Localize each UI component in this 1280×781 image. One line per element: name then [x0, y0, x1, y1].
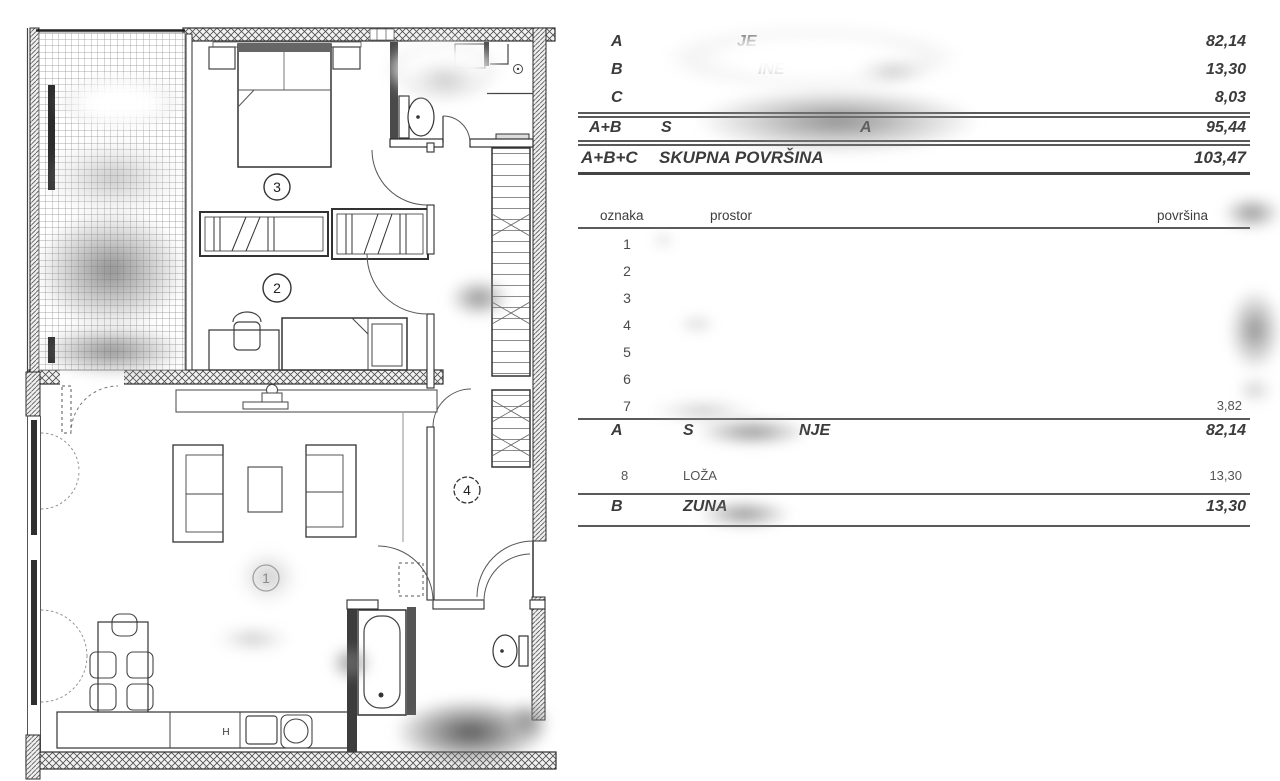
wardrobe-left	[200, 212, 328, 256]
door-arc-living	[433, 389, 471, 427]
header-oznaka: oznaka	[600, 208, 644, 223]
row-label-fragment: S	[661, 119, 672, 137]
room-row: 3	[575, 290, 1252, 310]
tv	[262, 393, 282, 402]
svg-text:4: 4	[463, 482, 471, 498]
row-code: A+B+C	[581, 148, 638, 168]
door-arc-bedroom3	[372, 150, 427, 205]
row-value: 8,03	[1215, 89, 1246, 107]
wc-bowl	[493, 635, 517, 667]
sofa-right	[306, 445, 356, 537]
room-row-8: 8 LOŽA 13,30	[575, 468, 1252, 486]
hall-wardrobe-low	[492, 390, 530, 467]
room-row: 5	[575, 344, 1252, 364]
wall-right-lower	[532, 597, 545, 720]
row-code: B	[611, 61, 623, 79]
wall-loggia-rooms	[186, 34, 192, 370]
row-code: C	[611, 89, 623, 107]
rule	[578, 418, 1250, 420]
row-code: B	[611, 498, 623, 516]
room-label-4: 4	[454, 477, 480, 503]
living-room: 1 H	[26, 372, 437, 779]
row-value: 95,44	[1206, 119, 1246, 137]
hall-wardrobe-tall	[492, 148, 530, 376]
rule	[578, 227, 1250, 229]
bedroom-3: 3	[209, 42, 361, 200]
row-code: 1	[619, 236, 635, 252]
row-name: LOŽA	[683, 468, 717, 483]
room-label-3: 3	[264, 174, 290, 200]
coffee-table	[248, 467, 282, 512]
door-arc-loggia	[71, 386, 118, 433]
row-label-fragment: NJE	[799, 422, 830, 440]
window-swing-1	[41, 433, 79, 509]
row-value: 82,14	[1206, 33, 1246, 51]
row-code: A+B	[589, 119, 621, 137]
kitchen-faucet-symbol: H	[222, 727, 229, 738]
rule	[578, 112, 1250, 114]
dining-set	[90, 614, 153, 717]
outdoor-total-row-b: B ZUNA 13,30	[575, 498, 1252, 520]
summary-row-abc: A+B+C SKUPNA POVRŠINA 103,47	[575, 148, 1252, 170]
bathroom-bottom	[347, 546, 545, 752]
door-arc-bath	[378, 546, 433, 601]
rule	[578, 144, 1250, 146]
row-label-fragment: A	[860, 119, 872, 137]
floorplan-document: 3 2	[0, 0, 1280, 781]
dining-chair	[112, 614, 137, 636]
door-gap-loggia	[60, 368, 124, 386]
single-bed	[282, 318, 407, 370]
nightstand-left	[209, 47, 235, 69]
wc-tank	[519, 636, 528, 666]
row-code: A	[611, 33, 623, 51]
shower-corner	[490, 44, 508, 64]
loggia	[28, 28, 186, 372]
row-value: 13,30	[1206, 498, 1246, 516]
wall-right-upper	[533, 28, 546, 541]
summary-row-a: A JE 82,14	[575, 33, 1252, 55]
door-arc-wc	[484, 554, 530, 601]
subtotal-row-a: A S NJE 82,14	[575, 422, 1252, 444]
row-code: 5	[619, 344, 635, 360]
room-row: 4	[575, 317, 1252, 337]
row-value: 82,14	[1206, 422, 1246, 440]
window-top	[370, 29, 394, 40]
hall-wardrobes: 4	[454, 148, 533, 597]
wardrobes	[200, 209, 428, 259]
rule	[578, 116, 1250, 118]
summary-row-c: C 8,03	[575, 89, 1252, 111]
summary-row-ab: A+B S A 95,44	[575, 119, 1252, 141]
header-prostor: prostor	[710, 208, 752, 223]
room-row: 6	[575, 371, 1252, 391]
area-summary-table: A JE 82,14 B INE 13,30 C 8,03 A+B S A 95…	[575, 0, 1252, 200]
row-label-fragment: INE	[758, 61, 785, 79]
room-label-1: 1	[253, 565, 279, 591]
row-code: A	[611, 422, 623, 440]
rule-thick	[578, 172, 1250, 175]
wall-tub-right	[407, 607, 416, 715]
rooms-table: oznaka prostor površina 1 2 3 4 5	[575, 200, 1252, 540]
wall-bathroom-left	[390, 42, 398, 143]
room-row: 7 3,82	[575, 398, 1252, 418]
loggia-window-bar2	[48, 337, 55, 363]
row-label-fragment: JE	[737, 33, 757, 51]
row-code: 8	[621, 468, 628, 483]
desk-chair	[234, 322, 260, 350]
room-row: 1	[575, 236, 1252, 256]
row-label-fragment: S	[683, 422, 694, 440]
summary-row-b: B INE 13,30	[575, 61, 1252, 83]
row-value: 103,47	[1194, 148, 1246, 168]
door-leaf-loggia	[62, 386, 71, 433]
row-code: 7	[619, 398, 635, 414]
wall-bath-left	[347, 600, 357, 752]
row-label-fragment: ZUNA	[683, 498, 727, 516]
window-bar-1	[31, 420, 37, 535]
sliding-door	[399, 563, 423, 596]
svg-text:1: 1	[262, 570, 270, 586]
rule	[578, 493, 1250, 495]
wall-top	[183, 28, 555, 41]
bathroom-top	[390, 42, 533, 147]
wall-loggia-left	[30, 28, 39, 372]
tub-drain	[379, 693, 384, 698]
svg-text:3: 3	[273, 179, 281, 195]
tv-bench	[176, 390, 437, 412]
window-bar-2	[31, 560, 37, 705]
rule	[578, 525, 1250, 527]
loggia-window-bar	[48, 85, 55, 190]
double-bed	[238, 44, 331, 167]
nightstand-right	[333, 47, 360, 69]
row-code: 3	[619, 290, 635, 306]
dining-chair	[127, 684, 153, 710]
bed-headboard	[238, 44, 331, 52]
kitchen: H	[57, 712, 355, 748]
rule	[578, 140, 1250, 142]
dining-chair	[90, 684, 116, 710]
door-arc-bedroom2	[367, 254, 427, 314]
room-row: 2	[575, 263, 1252, 283]
dining-chair	[127, 652, 153, 678]
desk-chair-back	[233, 312, 261, 322]
dining-chair	[90, 652, 116, 678]
sofa-left	[173, 445, 223, 542]
door-arc-bathroom	[443, 116, 470, 143]
wall-bottom	[26, 752, 556, 769]
row-code: 6	[619, 371, 635, 387]
window-swing-2	[41, 610, 87, 702]
tv-stand	[243, 402, 288, 409]
row-value: 13,30	[1206, 61, 1246, 79]
row-area: 13,30	[1209, 468, 1242, 483]
row-label: SKUPNA POVRŠINA	[659, 148, 824, 168]
floor-plan-drawing: 3 2	[0, 0, 570, 781]
loggia-tiles	[39, 33, 185, 370]
toilet-bowl	[408, 98, 434, 136]
svg-text:2: 2	[273, 280, 281, 296]
bathroom-sink	[455, 44, 485, 68]
header-povrsina: površina	[1157, 208, 1208, 223]
row-code: 2	[619, 263, 635, 279]
room-label-2: 2	[263, 274, 291, 302]
row-area: 3,82	[1217, 398, 1242, 413]
row-code: 4	[619, 317, 635, 333]
